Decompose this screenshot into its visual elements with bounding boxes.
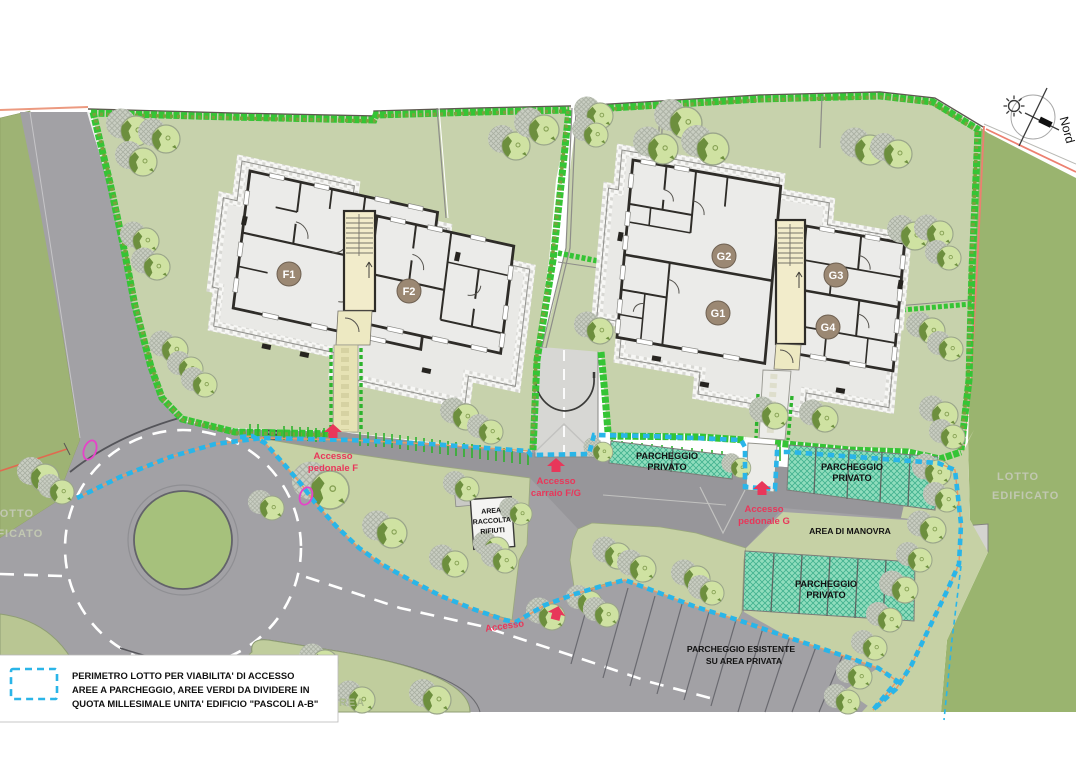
svg-text:PRIVATO: PRIVATO	[647, 462, 686, 472]
svg-text:PARCHEGGIO: PARCHEGGIO	[821, 462, 883, 472]
svg-text:PARCHEGGIO: PARCHEGGIO	[795, 579, 857, 589]
svg-text:SU AREA PRIVATA: SU AREA PRIVATA	[706, 656, 782, 666]
svg-text:PARCHEGGIO: PARCHEGGIO	[636, 451, 698, 461]
svg-text:EDIFICATO: EDIFICATO	[992, 490, 1059, 502]
svg-text:G3: G3	[829, 270, 844, 282]
svg-text:F2: F2	[403, 286, 416, 298]
svg-text:G2: G2	[717, 251, 732, 263]
svg-text:LOTTO: LOTTO	[997, 471, 1039, 483]
svg-text:AREA DI MANOVRA: AREA DI MANOVRA	[809, 526, 891, 536]
svg-text:PRIVATO: PRIVATO	[832, 473, 871, 483]
svg-text:G1: G1	[711, 308, 726, 320]
svg-text:LOTTO: LOTTO	[0, 508, 34, 520]
svg-text:Accesso: Accesso	[744, 504, 783, 515]
svg-text:PARCHEGGIO ESISTENTE: PARCHEGGIO ESISTENTE	[687, 644, 795, 654]
svg-text:Accesso: Accesso	[536, 476, 575, 487]
svg-text:carraio F/G: carraio F/G	[531, 488, 581, 499]
svg-text:AREA: AREA	[481, 507, 501, 515]
svg-text:EDIFICATO: EDIFICATO	[0, 528, 43, 540]
svg-text:Accesso: Accesso	[313, 451, 352, 462]
svg-text:PRIVATO: PRIVATO	[806, 590, 845, 600]
svg-text:pedonale F: pedonale F	[308, 463, 358, 474]
svg-text:F1: F1	[283, 269, 296, 281]
svg-text:G4: G4	[821, 322, 837, 334]
svg-text:PERIMETRO LOTTO PER VIABILITA': PERIMETRO LOTTO PER VIABILITA' DI ACCESS…	[72, 670, 294, 681]
svg-text:QUOTA MILLESIMALE UNITA' EDIFI: QUOTA MILLESIMALE UNITA' EDIFICIO "PASCO…	[72, 698, 318, 709]
svg-text:pedonale G: pedonale G	[738, 516, 790, 527]
svg-text:AREE A PARCHEGGIO, AREE VERDI: AREE A PARCHEGGIO, AREE VERDI DA DIVIDER…	[72, 684, 310, 695]
